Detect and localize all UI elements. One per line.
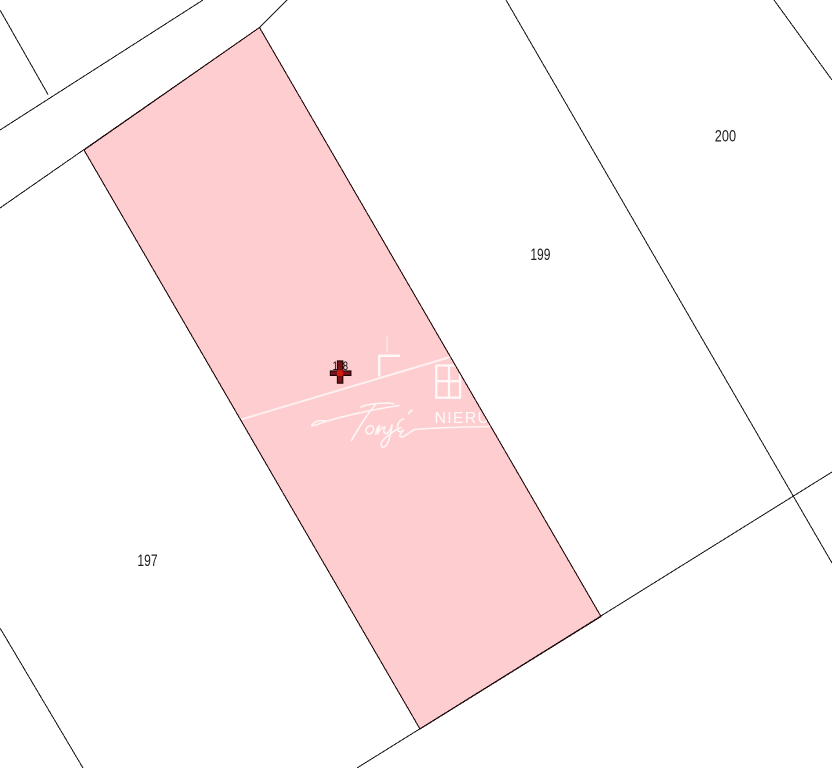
- svg-text:200: 200: [715, 127, 736, 146]
- svg-text:NIERUCHOMOŚCI: NIERUCHOMOŚCI: [435, 408, 588, 427]
- svg-text:197: 197: [137, 552, 157, 570]
- svg-text:199: 199: [530, 246, 550, 264]
